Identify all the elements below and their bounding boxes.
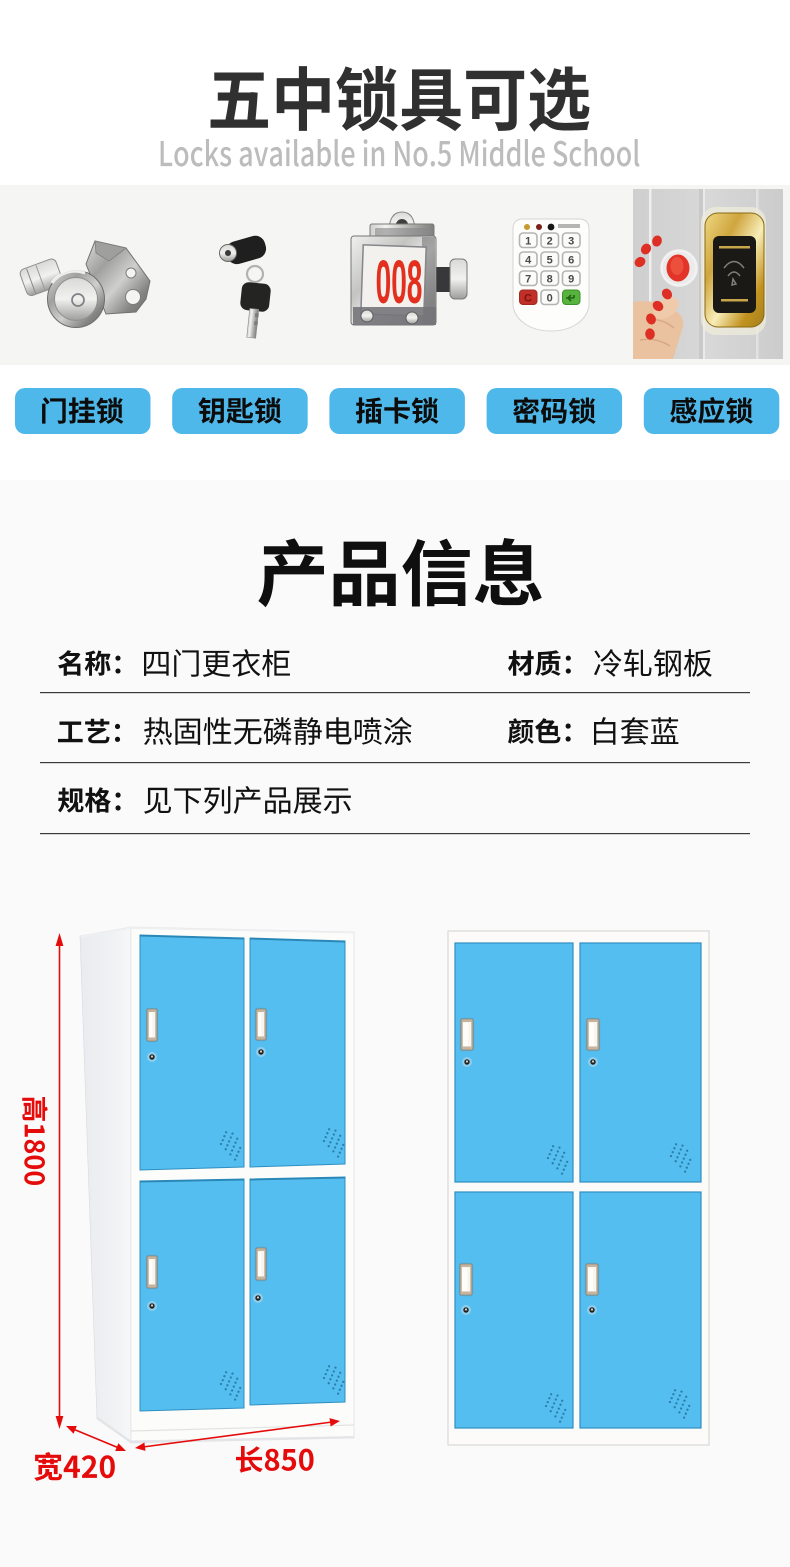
svg-text:008: 008 — [376, 249, 423, 317]
svg-text:5: 5 — [547, 254, 553, 266]
svg-text:1: 1 — [525, 235, 531, 247]
svg-text:9: 9 — [568, 273, 574, 285]
svg-text:0: 0 — [547, 292, 553, 304]
svg-text:C: C — [524, 292, 532, 304]
svg-text:4: 4 — [525, 254, 532, 266]
svg-text:6: 6 — [568, 254, 574, 266]
svg-text:2: 2 — [547, 235, 553, 247]
svg-text:3: 3 — [568, 235, 574, 247]
svg-text:7: 7 — [525, 273, 531, 285]
svg-text:8: 8 — [547, 273, 553, 285]
